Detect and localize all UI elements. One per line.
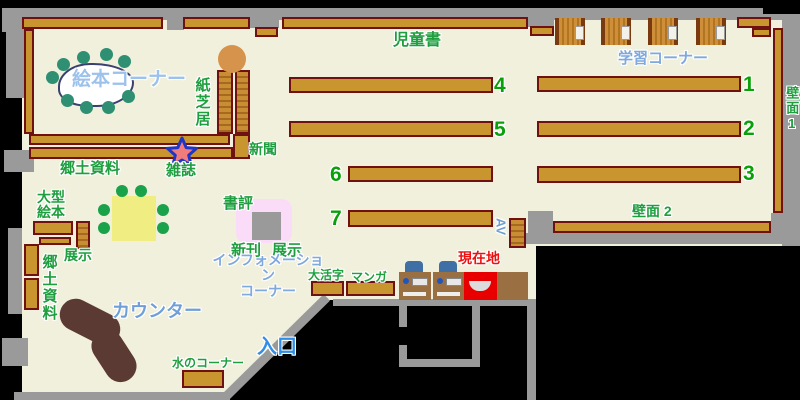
stool	[61, 94, 74, 107]
bookshelf	[737, 17, 771, 28]
power-dot	[437, 278, 443, 284]
bookshelf-2	[537, 121, 741, 137]
label-local-materials: 郷土資料	[60, 161, 120, 178]
label-large-print: 大活字	[308, 269, 344, 282]
label-wall-2: 壁面 2	[632, 204, 672, 219]
stool	[102, 101, 115, 114]
shelf-number-2: 2	[743, 117, 755, 140]
desk-chair	[575, 26, 584, 40]
shelf-number-5: 5	[494, 118, 506, 141]
bookshelf	[22, 17, 163, 29]
stool	[77, 51, 90, 64]
bookshelf	[24, 244, 39, 276]
group-table	[112, 196, 156, 241]
library-floor-map: 絵本コーナー 紙芝居 新聞 雑誌 郷土資料 大型 絵本 展示 郷土資料 児童書 …	[0, 0, 800, 400]
desk-chair	[716, 26, 725, 40]
wall-inner	[333, 299, 536, 306]
desk-shelf	[437, 292, 460, 296]
chair	[98, 222, 110, 234]
wall-stair-outline	[399, 359, 480, 367]
opac-terminal	[433, 272, 465, 300]
study-desk	[696, 18, 726, 45]
study-desk	[648, 18, 678, 45]
study-desk	[555, 18, 585, 45]
bookshelf-3	[537, 166, 741, 183]
stool	[122, 90, 135, 103]
wall-bottom	[14, 392, 230, 400]
water-corner-shelf	[182, 370, 224, 388]
opac-terminal	[399, 272, 431, 300]
label-book-review: 書評	[223, 196, 253, 213]
side-cabinet	[497, 272, 528, 300]
wall-stair-outline	[399, 301, 407, 327]
shelf-number-3: 3	[743, 162, 755, 185]
label-children-books: 児童書	[393, 32, 441, 50]
desk-shelf	[403, 292, 426, 296]
label-water-corner: 水のコーナー	[172, 357, 244, 370]
label-large-picture-books: 大型 絵本	[37, 190, 65, 221]
wall-pillar	[528, 8, 554, 27]
label-local-materials-vert: 郷土資料	[40, 254, 57, 322]
bookshelf	[255, 27, 278, 37]
kamishibai-shelf	[235, 70, 250, 134]
bookshelf	[530, 26, 554, 36]
wall-pillar	[250, 8, 279, 28]
desk-chair	[668, 26, 677, 40]
wall-pillar	[2, 338, 28, 366]
bookshelf	[29, 147, 233, 159]
label-manga: マンガ	[351, 271, 387, 284]
kamishibai-shelf	[217, 70, 233, 134]
wall-pillar	[528, 211, 553, 237]
chair	[157, 222, 169, 234]
stool	[118, 55, 131, 68]
study-desk	[601, 18, 631, 45]
shelf-number-1: 1	[743, 73, 755, 96]
bookshelf-1	[537, 76, 741, 92]
current-location-marker	[464, 272, 497, 300]
label-counter: カウンター	[112, 302, 202, 322]
label-magazine: 雑誌	[166, 163, 196, 180]
window-gap	[763, 0, 800, 14]
av-shelf	[509, 218, 526, 248]
label-study-corner: 学習コーナー	[618, 51, 708, 68]
wall-inner	[527, 299, 536, 400]
stool	[46, 71, 59, 84]
bookshelf	[24, 29, 34, 134]
bookshelf	[282, 17, 528, 29]
stool	[57, 58, 70, 71]
wall2-shelf	[553, 221, 771, 233]
bookshelf-7	[348, 210, 493, 227]
bookshelf	[39, 237, 71, 245]
wall-bottom-right	[518, 233, 800, 244]
bookshelf	[752, 28, 771, 37]
bookshelf-5	[289, 121, 493, 137]
label-current-location: 現在地	[458, 251, 500, 266]
label-entrance: 入口	[257, 336, 297, 358]
label-newspaper: 新聞	[249, 142, 277, 157]
label-wall-1: 壁面1	[784, 86, 798, 133]
stool	[80, 101, 93, 114]
chair	[98, 204, 110, 216]
keyboard-icon	[412, 278, 428, 286]
chair	[135, 185, 147, 197]
bookshelf	[183, 17, 250, 29]
bookshelf	[33, 221, 73, 235]
display-stand	[252, 212, 281, 240]
wall1-shelf	[773, 28, 783, 213]
chair	[116, 185, 128, 197]
round-table	[218, 45, 246, 73]
location-bowl-icon	[469, 281, 491, 291]
bookshelf-4	[289, 77, 493, 93]
power-dot	[403, 278, 409, 284]
label-kamishibai: 紙芝居	[193, 77, 210, 128]
shelf-number-7: 7	[330, 207, 342, 230]
wall-left	[8, 228, 22, 314]
label-display-left: 展示	[64, 248, 92, 263]
stool	[100, 48, 113, 61]
wall-stair-outline	[472, 301, 480, 367]
shelf-number-4: 4	[494, 74, 506, 97]
label-av: AV	[493, 218, 507, 235]
display-shelf	[76, 221, 90, 249]
label-picture-book-corner: 絵本コーナー	[72, 70, 186, 91]
keyboard-icon	[446, 278, 462, 286]
desk-chair	[621, 26, 630, 40]
bookshelf-6	[348, 166, 493, 182]
wall-pillar	[771, 213, 800, 239]
shelf-number-6: 6	[330, 163, 342, 186]
bookshelf	[29, 134, 230, 145]
newspaper-shelf	[233, 134, 250, 159]
wall-pillar	[167, 8, 184, 30]
bookshelf	[24, 278, 39, 310]
chair	[157, 204, 169, 216]
